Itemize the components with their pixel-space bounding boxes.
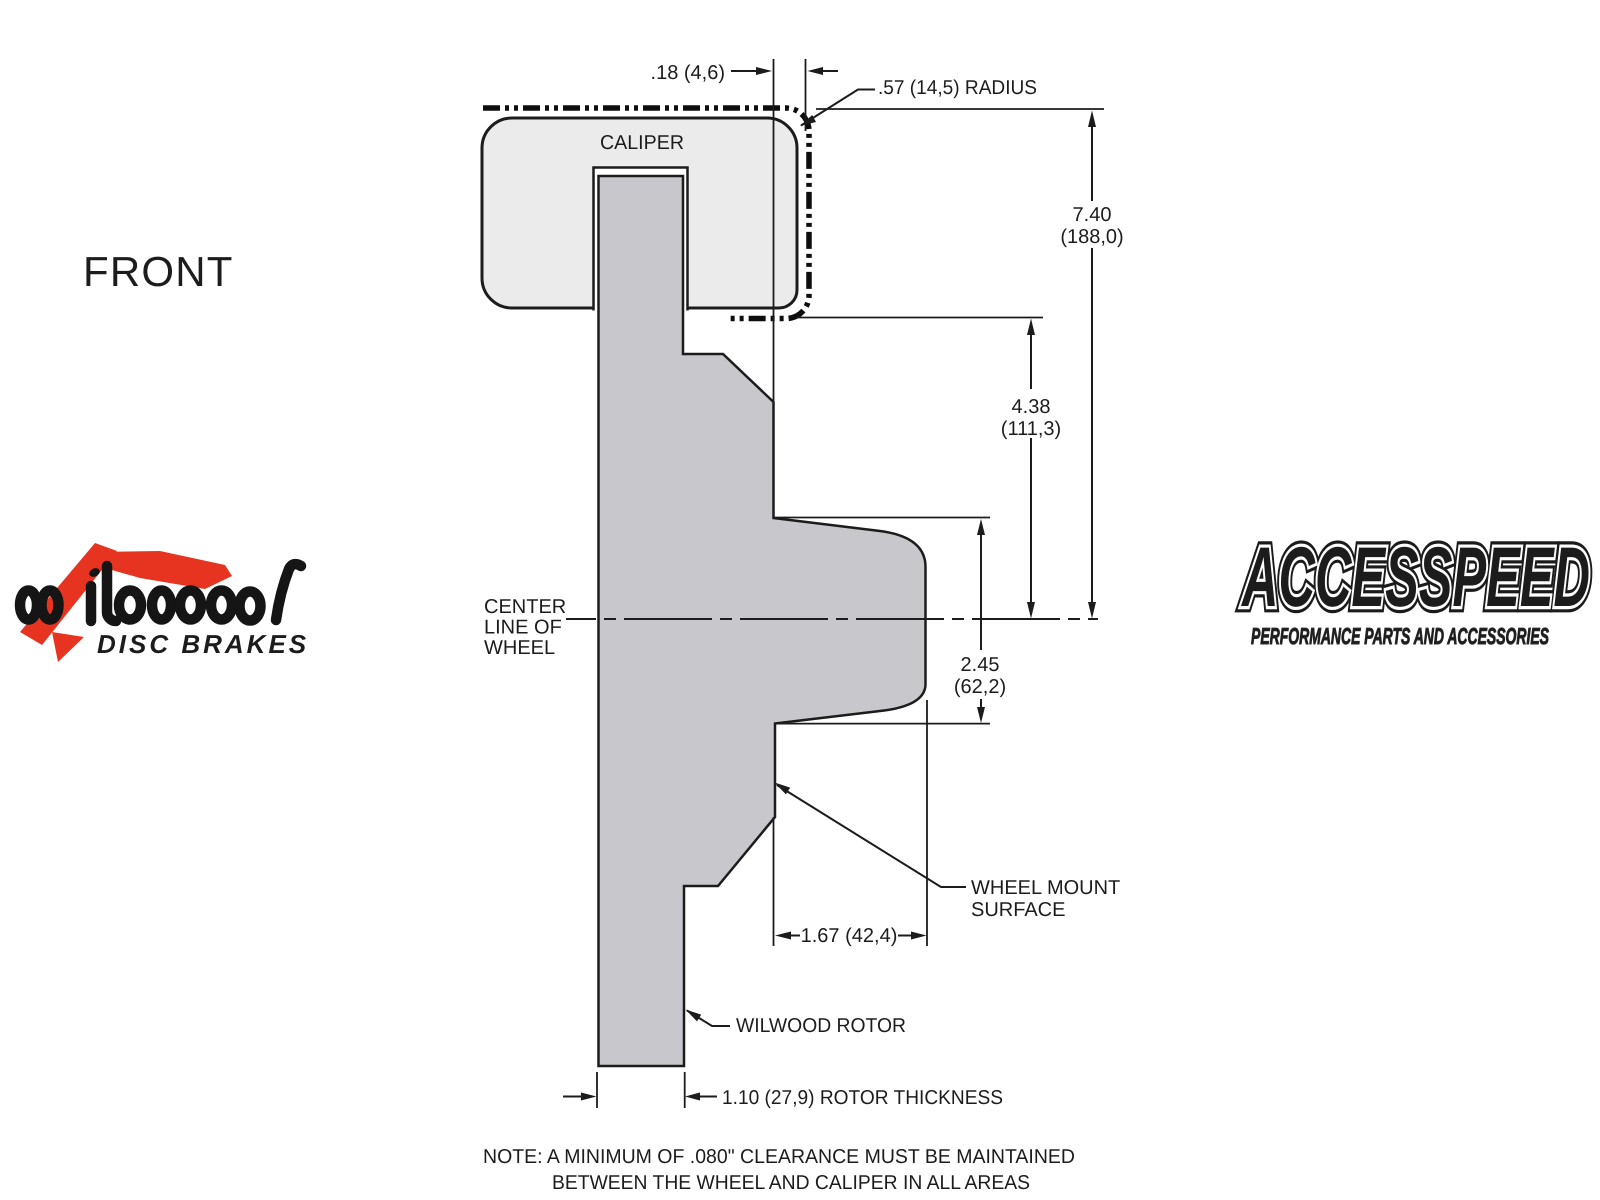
svg-text:LINE OF: LINE OF [484,617,562,639]
svg-text:ACCESSPEED: ACCESSPEED [1240,531,1590,625]
svg-text:DISC BRAKES: DISC BRAKES [97,629,309,659]
svg-text:1.67 (42,4): 1.67 (42,4) [801,925,898,947]
svg-text:CALIPER: CALIPER [600,132,684,154]
svg-text:.18 (4,6): .18 (4,6) [651,62,725,84]
svg-text:7.40: 7.40 [1073,204,1112,226]
svg-text:4.38: 4.38 [1012,396,1051,418]
svg-text:.57 (14,5) RADIUS: .57 (14,5) RADIUS [878,77,1037,99]
svg-text:2.45: 2.45 [961,654,1000,676]
svg-text:BETWEEN THE WHEEL AND CALIPER: BETWEEN THE WHEEL AND CALIPER IN ALL ARE… [552,1172,1030,1194]
svg-text:SURFACE: SURFACE [971,899,1065,921]
svg-text:(188,0): (188,0) [1060,226,1123,248]
svg-text:FRONT: FRONT [83,248,234,295]
svg-text:(62,2): (62,2) [954,676,1006,698]
svg-text:(111,3): (111,3) [1001,418,1061,440]
svg-text:WHEEL: WHEEL [484,637,555,659]
svg-text:1.10 (27,9) ROTOR THICKNESS: 1.10 (27,9) ROTOR THICKNESS [722,1087,1003,1109]
svg-text:CENTER: CENTER [484,596,566,618]
svg-text:NOTE: A MINIMUM OF .080" CLEAR: NOTE: A MINIMUM OF .080" CLEARANCE MUST … [483,1146,1075,1168]
svg-text:WHEEL MOUNT: WHEEL MOUNT [971,877,1120,899]
svg-text:WILWOOD ROTOR: WILWOOD ROTOR [736,1015,906,1037]
svg-text:PERFORMANCE PARTS AND ACCESSOR: PERFORMANCE PARTS AND ACCESSORIES [1251,623,1549,649]
